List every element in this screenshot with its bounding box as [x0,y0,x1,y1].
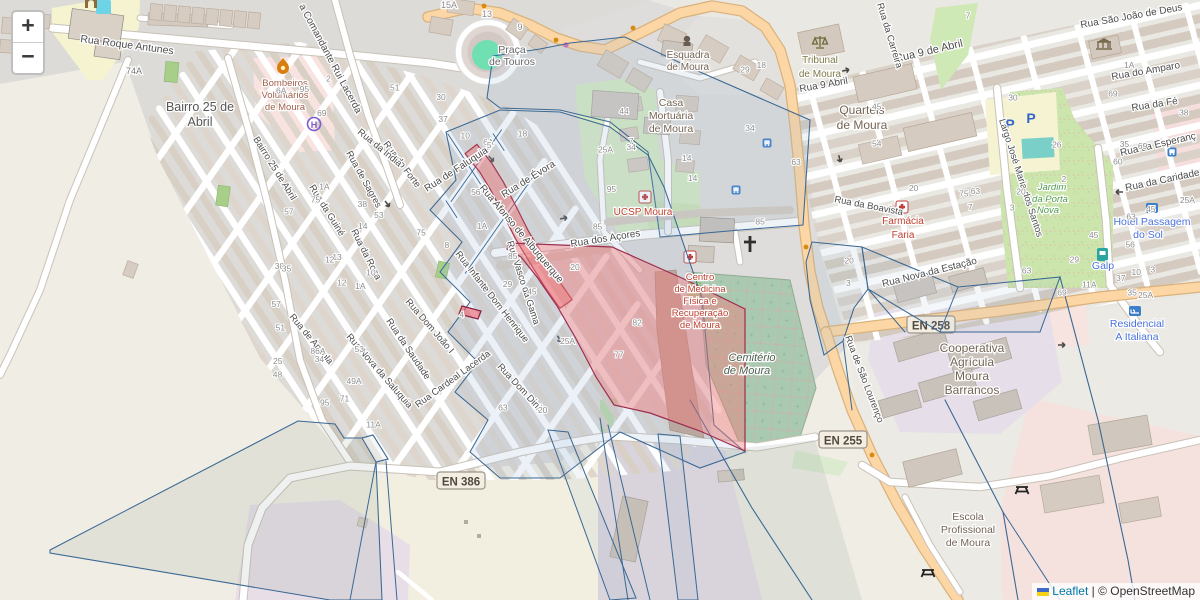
svg-text:95: 95 [607,184,617,194]
svg-text:de Medicina: de Medicina [674,284,726,295]
svg-text:56: 56 [471,187,481,197]
svg-text:71: 71 [340,394,350,404]
svg-text:13: 13 [482,9,492,19]
svg-text:35: 35 [282,263,292,273]
svg-text:9: 9 [517,22,522,32]
svg-text:29: 29 [503,279,513,289]
svg-text:7: 7 [968,202,973,212]
svg-text:Hotel Passagem: Hotel Passagem [1113,216,1190,228]
svg-text:63: 63 [791,157,801,167]
svg-text:45: 45 [1146,204,1156,214]
svg-text:86A: 86A [310,346,325,356]
svg-text:14: 14 [358,221,368,231]
svg-text:51: 51 [276,323,286,333]
svg-text:3: 3 [1150,264,1155,274]
svg-text:25A: 25A [1138,290,1153,300]
svg-text:1A: 1A [1124,60,1135,70]
svg-text:7: 7 [629,136,634,146]
svg-text:de Touros: de Touros [489,56,535,68]
svg-text:3: 3 [846,278,851,288]
svg-text:20: 20 [538,405,548,415]
svg-text:Casa: Casa [659,97,684,109]
svg-text:69: 69 [1138,141,1148,151]
svg-text:20: 20 [909,183,919,193]
svg-text:29: 29 [1070,254,1080,264]
svg-text:18: 18 [518,128,528,138]
svg-text:Profissional: Profissional [941,524,995,536]
svg-text:57: 57 [272,299,282,309]
svg-text:85: 85 [593,221,603,231]
svg-text:38: 38 [1179,108,1189,118]
svg-text:Barrancos: Barrancos [945,383,1000,397]
svg-text:15A: 15A [441,0,457,10]
svg-text:25A: 25A [560,336,575,346]
svg-text:5: 5 [487,140,492,150]
svg-text:85: 85 [508,251,518,261]
svg-text:20: 20 [570,262,580,272]
svg-text:do Sol: do Sol [1133,229,1163,241]
svg-text:4: 4 [459,309,464,319]
svg-text:EN 386: EN 386 [442,477,480,489]
svg-text:UCSP Moura: UCSP Moura [614,207,673,218]
svg-text:de Moura: de Moura [799,69,842,80]
svg-text:EN 255: EN 255 [824,436,863,448]
svg-text:25A: 25A [598,144,613,154]
svg-text:Centro: Centro [686,272,715,283]
svg-text:2: 2 [326,73,331,83]
svg-text:Farmácia: Farmácia [882,216,924,227]
svg-text:75: 75 [416,227,426,237]
svg-text:20: 20 [1016,187,1026,197]
svg-text:Recuperação: Recuperação [672,308,729,319]
svg-text:30: 30 [436,92,446,102]
svg-text:Escola: Escola [952,511,984,523]
svg-text:de Moura: de Moura [837,118,888,132]
svg-text:de Moura: de Moura [265,102,306,113]
svg-text:95: 95 [300,84,310,94]
svg-text:H: H [311,120,318,130]
svg-text:12: 12 [337,277,347,287]
svg-text:63: 63 [1022,265,1032,275]
svg-text:14: 14 [688,173,698,183]
svg-text:Tribunal: Tribunal [802,55,838,66]
svg-text:Bairro 25 de: Bairro 25 de [166,100,234,114]
svg-text:53: 53 [374,210,384,220]
svg-text:25A: 25A [1180,195,1195,205]
svg-text:1A: 1A [477,221,488,231]
svg-text:Cemitério: Cemitério [728,352,775,364]
svg-text:54: 54 [872,138,882,148]
svg-text:37: 37 [1116,273,1126,283]
svg-text:3: 3 [1010,203,1015,213]
svg-text:2: 2 [1062,174,1067,184]
svg-text:Abril: Abril [187,115,212,129]
svg-text:75: 75 [311,195,321,205]
svg-text:45: 45 [1089,230,1099,240]
svg-text:de Moura: de Moura [680,320,721,331]
svg-text:A Italiana: A Italiana [1115,331,1158,343]
svg-text:69: 69 [1057,288,1067,298]
svg-text:10: 10 [366,268,376,278]
svg-text:30: 30 [1008,92,1018,102]
svg-text:de Moura: de Moura [724,365,770,377]
svg-text:10: 10 [1131,267,1141,277]
svg-text:95: 95 [320,397,330,407]
svg-text:Residencial: Residencial [1110,318,1164,330]
svg-text:34: 34 [745,123,755,133]
svg-text:Física e: Física e [683,296,716,307]
svg-text:63: 63 [498,402,508,412]
svg-text:63: 63 [1126,212,1136,222]
svg-text:57: 57 [284,207,294,217]
svg-text:Mortuária: Mortuária [649,110,694,122]
svg-text:P: P [1026,110,1035,126]
svg-text:75: 75 [959,189,969,199]
svg-text:11A: 11A [1082,279,1097,289]
svg-text:38: 38 [358,199,368,209]
svg-text:11A: 11A [366,419,381,429]
svg-text:29: 29 [740,64,750,74]
svg-text:77: 77 [614,349,624,359]
svg-text:Agrícula: Agrícula [950,355,994,369]
svg-text:74A: 74A [126,66,142,76]
svg-text:51: 51 [390,82,400,92]
svg-text:de Moura: de Moura [667,62,710,73]
svg-text:Nova: Nova [1037,205,1059,216]
svg-text:12: 12 [325,255,335,265]
svg-text:37: 37 [438,114,448,124]
svg-text:8: 8 [445,240,450,250]
svg-text:63: 63 [971,186,981,196]
svg-text:7: 7 [966,10,971,20]
svg-text:Cooperativa: Cooperativa [940,341,1005,355]
svg-text:6A: 6A [276,86,287,96]
svg-text:35: 35 [1120,139,1130,149]
svg-text:69: 69 [1108,88,1118,98]
svg-text:Moura: Moura [955,369,989,383]
svg-text:Esquadra: Esquadra [667,50,710,61]
svg-text:85: 85 [755,217,765,227]
svg-text:45: 45 [527,286,537,296]
svg-text:14: 14 [682,153,692,163]
svg-text:48: 48 [273,370,283,380]
svg-text:Faria: Faria [892,230,915,241]
svg-text:69: 69 [317,108,327,118]
svg-text:Praça: Praça [498,44,526,56]
svg-text:56: 56 [1125,239,1135,249]
svg-text:45: 45 [872,101,882,111]
svg-text:25: 25 [273,356,283,366]
svg-text:da Porta: da Porta [1032,194,1068,205]
svg-text:82: 82 [632,317,642,327]
svg-text:1A: 1A [319,182,330,192]
svg-text:10: 10 [461,131,471,141]
svg-text:20: 20 [844,256,854,266]
svg-text:35: 35 [1127,288,1137,298]
svg-text:Galp: Galp [1092,260,1114,272]
svg-text:26: 26 [1052,140,1062,150]
svg-text:60: 60 [1113,156,1123,166]
svg-text:1A: 1A [355,281,366,291]
svg-text:53: 53 [355,344,365,354]
svg-text:de Moura: de Moura [946,537,991,549]
svg-text:49A: 49A [346,376,361,386]
svg-text:18: 18 [757,60,767,70]
svg-text:de Moura: de Moura [649,123,694,135]
svg-text:44: 44 [619,106,629,116]
